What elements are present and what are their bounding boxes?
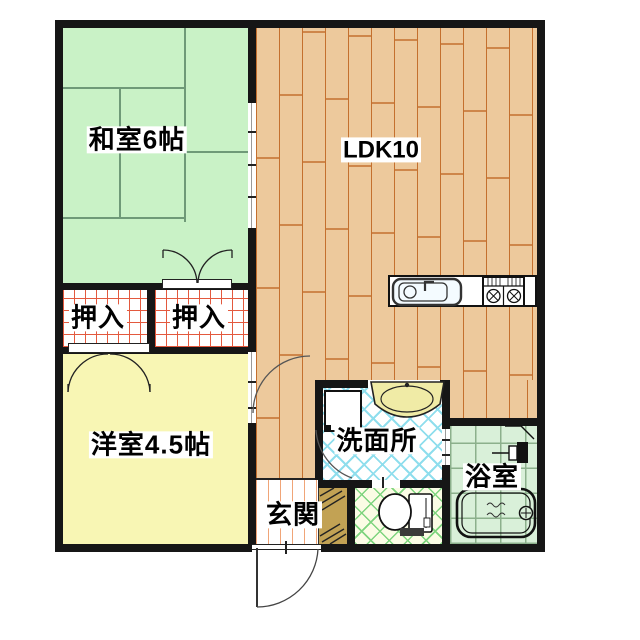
toilet-door-gap <box>372 480 400 488</box>
washing-machine-corner <box>324 425 331 432</box>
room-washitsu-floor <box>63 28 248 283</box>
tatami-line <box>184 151 248 153</box>
door-tick <box>248 381 256 383</box>
label-ldk: LDK10 <box>341 137 421 162</box>
wall-senmenjo-left <box>315 380 323 488</box>
door-tick <box>248 131 256 133</box>
tatami-line <box>63 217 185 219</box>
sliding-door-line <box>445 429 446 465</box>
door-tick <box>248 407 256 409</box>
wall-toilet-left <box>347 488 355 544</box>
floor-plan-page: { "plan": { "type": "apartment-floor-pla… <box>0 0 640 640</box>
entrance-door-arc <box>257 549 318 607</box>
label-washitsu: 和室6帖 <box>87 126 187 153</box>
label-oshiire-left: 押入 <box>69 304 127 331</box>
sliding-door-youshitsu-hall <box>248 352 256 423</box>
closet-door-threshold <box>68 343 150 353</box>
door-tick <box>248 164 256 166</box>
sliding-door-line <box>251 352 252 423</box>
room-toilet-floor <box>355 488 442 544</box>
entrance-door-leaf <box>256 548 258 607</box>
kitchen-counter <box>388 275 537 307</box>
tatami-line <box>63 87 185 89</box>
label-yokushitsu: 浴室 <box>463 463 521 490</box>
wall-closet-divider <box>147 290 155 347</box>
sliding-door-washitsu-ldk <box>248 103 256 228</box>
ldk-floor-strip <box>450 380 537 418</box>
door-tick <box>442 454 450 456</box>
label-senmenjo: 洗面所 <box>334 427 419 454</box>
door-tick <box>285 541 287 554</box>
door-tick <box>442 439 450 441</box>
room-ldk-floor <box>256 28 537 380</box>
hallway-floor <box>256 380 315 480</box>
label-genkan: 玄関 <box>264 501 322 528</box>
label-oshiire-right: 押入 <box>170 304 228 331</box>
closet-door-threshold <box>162 279 232 289</box>
wall-bath-top <box>442 418 537 426</box>
genkan-step-strip <box>318 488 347 544</box>
basin-wall-gap <box>368 380 440 388</box>
door-tick <box>248 196 256 198</box>
bath-door-gap <box>442 429 450 465</box>
label-youshitsu: 洋室4.5帖 <box>89 431 213 458</box>
